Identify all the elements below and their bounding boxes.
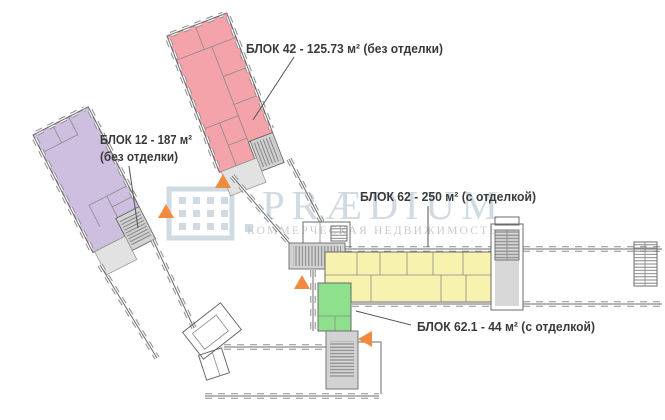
leader-blok-62-1 <box>356 311 411 325</box>
marker-triangle-blok-12 <box>158 204 174 218</box>
bottom-wing <box>326 331 381 394</box>
marker-triangle-blok-62 <box>294 275 310 289</box>
floor-plan-svg: PRÆDIUM КОММЕРЧЕСКАЯ НЕДВИЖИМОСТЬ <box>0 0 665 420</box>
stairs-hatch <box>330 341 354 377</box>
label-blok-12-line1: БЛОК 12 - 187 м² <box>100 132 193 147</box>
label-blok-42: БЛОК 42 - 125.73 м² (без отделки) <box>246 41 443 56</box>
stair-far-right <box>634 242 657 286</box>
stairs-hatch <box>634 242 657 286</box>
watermark-logo-icon <box>169 189 253 238</box>
stair-tower-right <box>491 217 523 310</box>
label-blok-62-1: БЛОК 62.1 - 44 м² (с отделкой) <box>417 319 595 334</box>
annex-structures <box>183 303 242 380</box>
marker-triangle-blok-62-1 <box>358 331 372 347</box>
floor-plan-image: PRÆDIUM КОММЕРЧЕСКАЯ НЕДВИЖИМОСТЬ <box>0 0 665 420</box>
leader-blok-42 <box>253 57 294 120</box>
block-62-1-area <box>318 283 351 331</box>
label-blok-62: БЛОК 62 - 250 м² (с отделкой) <box>360 189 536 204</box>
label-blok-12-line2: (без отделки) <box>100 149 178 164</box>
